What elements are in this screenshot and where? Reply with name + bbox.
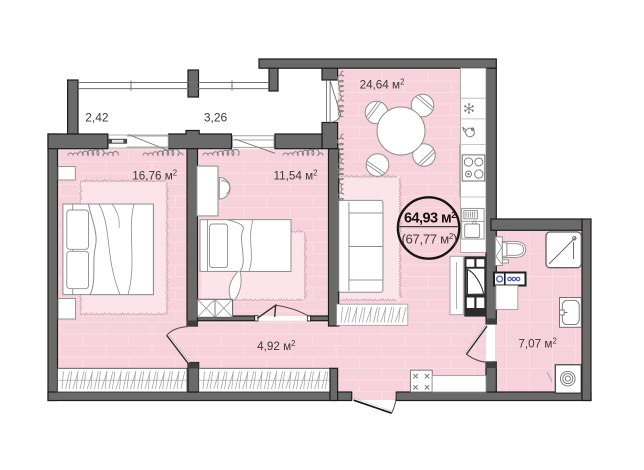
svg-text:11,54 м2: 11,54 м2 <box>273 169 317 183</box>
svg-text:3,26: 3,26 <box>204 111 228 125</box>
svg-text:16,76 м2: 16,76 м2 <box>132 169 177 183</box>
svg-text:7,07 м2: 7,07 м2 <box>518 337 556 351</box>
svg-text:24,64 м2: 24,64 м2 <box>360 78 405 92</box>
svg-text:2,42: 2,42 <box>85 111 109 125</box>
svg-text:64,93 м2: 64,93 м2 <box>404 210 456 227</box>
svg-text:4,92 м2: 4,92 м2 <box>257 339 295 353</box>
svg-text:(67,77 м2): (67,77 м2) <box>402 231 457 246</box>
